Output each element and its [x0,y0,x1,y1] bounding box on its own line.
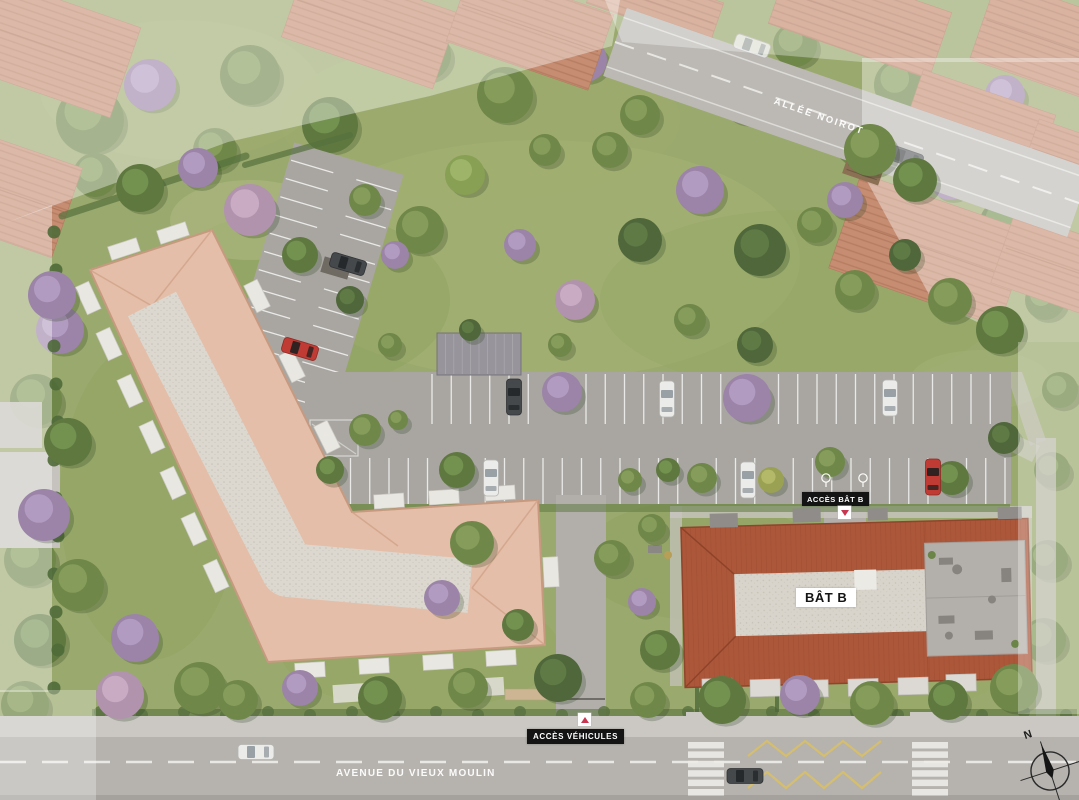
site-plan-canvas [0,0,1079,800]
balcony [898,677,928,695]
car-windshield [247,746,255,758]
car-windshield [884,389,896,397]
tree [547,376,569,398]
tree [533,137,551,155]
car [238,745,274,760]
balcony [359,658,390,675]
tree [729,379,755,405]
tree [450,159,472,181]
tree [117,619,143,645]
tree [645,634,667,656]
tree [340,289,355,304]
car-rear-window [264,747,269,758]
tree [444,456,464,476]
playground-item [648,545,662,553]
tree [353,187,371,205]
tree [802,211,822,231]
tree [992,425,1010,443]
crosswalk-stripe [912,789,948,796]
triangle-up-icon [581,717,589,723]
tree [785,679,807,701]
tree [761,470,775,484]
car [507,379,522,415]
tree [741,229,770,258]
car-windshield [736,770,744,782]
tree [102,676,128,702]
tree [632,591,647,606]
fade-wash [1018,342,1079,714]
balcony [423,654,454,671]
tree [25,494,54,523]
tree [231,189,260,218]
tree [287,674,307,694]
balcony [543,557,560,588]
tree [682,171,708,197]
triangle-down-icon [841,510,849,516]
cypress-hedge [48,340,61,353]
terrace-furniture [1001,568,1011,582]
car [926,459,941,495]
road-curb [0,795,1079,800]
tree [939,464,958,483]
tree [34,276,60,302]
tree [893,242,911,260]
tree [540,659,566,685]
terrace-furniture [975,630,993,639]
crosswalk-stripe [912,780,948,787]
tree [456,525,480,549]
tree [551,335,564,348]
entrance-canopy [793,508,821,523]
tree [856,685,880,709]
tree [597,136,617,156]
roof-skylight [854,569,877,590]
entrance-canopy [710,513,738,528]
crosswalk-stripe [688,770,724,777]
cypress-hedge [50,378,63,391]
tree [704,681,730,707]
crosswalk-stripe [688,751,724,758]
building-b-label: BÂT B [796,588,856,607]
tree [934,282,958,306]
tree [624,222,648,246]
tree [59,564,88,593]
terrace-furniture [939,557,953,564]
tree [742,331,762,351]
crosswalk-stripe [688,742,724,749]
car-windshield [508,388,520,396]
street-name-avenue-du-vieux-moulin: AVENUE DU VIEUX MOULIN [336,768,496,779]
cypress-hedge [48,226,61,239]
car [883,380,898,416]
cypress-hedge [50,606,63,619]
tree [320,459,335,474]
cypress-hedge [52,644,65,657]
access-marker-icon [838,506,851,519]
tree [508,232,526,250]
car-rear-window [885,406,896,411]
tree [122,169,148,195]
tree [453,672,475,694]
tree [462,321,474,333]
tree [599,544,619,564]
balcony [374,493,405,509]
tree [691,466,708,483]
car-windshield [485,469,497,477]
tree [635,686,655,706]
tree [678,307,696,325]
access-vehicles-badge: ACCÈS VÉHICULES [527,729,624,744]
tree [181,667,210,696]
car [660,381,675,417]
car-rear-window [928,485,939,490]
car-rear-window [486,486,497,491]
site-plan: ALLÉE NOIROT AVENUE DU VIEUX MOULIN BÂT … [0,0,1079,800]
tree [391,412,402,423]
car-windshield [742,471,754,479]
entrance-canopy [868,508,888,521]
tree [183,152,205,174]
balcony [750,679,780,697]
tree [832,186,852,206]
crosswalk-stripe [912,770,948,777]
car-rear-window [662,407,673,412]
fade-wash [0,690,96,800]
tree [429,584,449,604]
car [727,769,763,784]
tree [506,612,524,630]
tree [933,684,955,706]
tree [50,423,76,449]
car [484,460,499,496]
terrace-furniture [938,615,954,623]
tree [982,311,1008,337]
tree [364,680,388,704]
tree [819,450,836,467]
balcony [429,489,460,505]
tree [659,460,672,473]
tree [899,162,923,186]
building-b [681,502,1033,700]
crosswalk-stripe [688,780,724,787]
car [741,462,756,498]
car-rear-window [753,771,758,782]
tree [381,335,394,348]
tree [402,211,428,237]
car-windshield [661,390,673,398]
tree [353,417,371,435]
crosswalk-stripe [688,789,724,796]
access-building-b-badge: ACCÈS BÂT B [802,492,869,506]
car-rear-window [509,405,520,410]
tree [385,244,400,259]
road-layer [0,712,1079,800]
tree [223,684,245,706]
tree [625,99,647,121]
balcony [486,650,517,667]
tree [560,284,582,306]
tree [287,241,307,261]
tree [840,274,862,296]
crosswalk-stripe [912,742,948,749]
crosswalk-stripe [912,761,948,768]
car-rear-window [743,488,754,493]
playground-item [664,551,672,559]
tree [621,470,634,483]
crosswalk-stripe [912,751,948,758]
tree [642,517,657,532]
car-windshield [927,468,939,476]
crosswalk-stripe [688,761,724,768]
access-marker-icon [578,713,591,726]
